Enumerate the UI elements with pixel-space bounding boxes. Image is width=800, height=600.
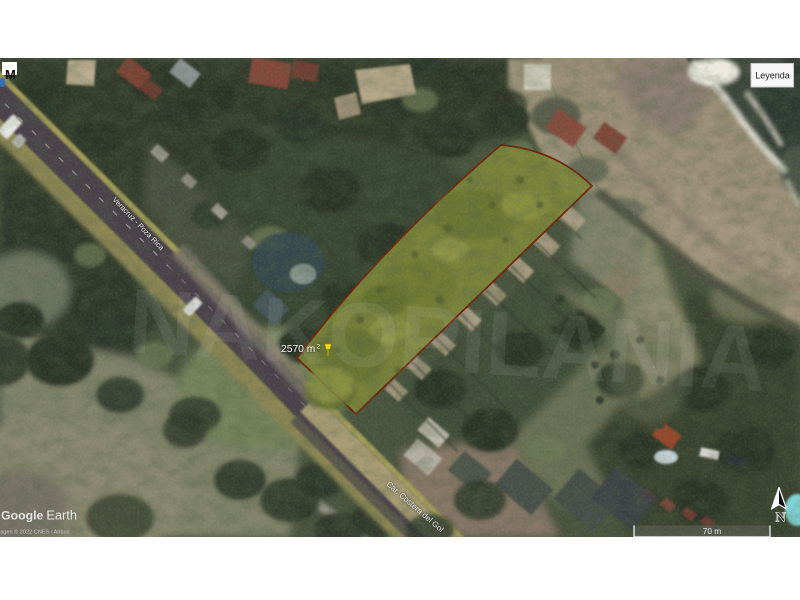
svg-text:Leyenda: Leyenda <box>755 71 790 81</box>
svg-text:GoogleEarth: GoogleEarth <box>1 508 77 523</box>
svg-text:2570 m2: 2570 m2 <box>281 344 321 356</box>
svg-text:N: N <box>776 511 786 526</box>
svg-text:M: M <box>5 67 16 82</box>
svg-text:70 m: 70 m <box>703 526 722 536</box>
svg-text:nagen © 2022 CNES / Airbus: nagen © 2022 CNES / Airbus <box>0 529 70 536</box>
